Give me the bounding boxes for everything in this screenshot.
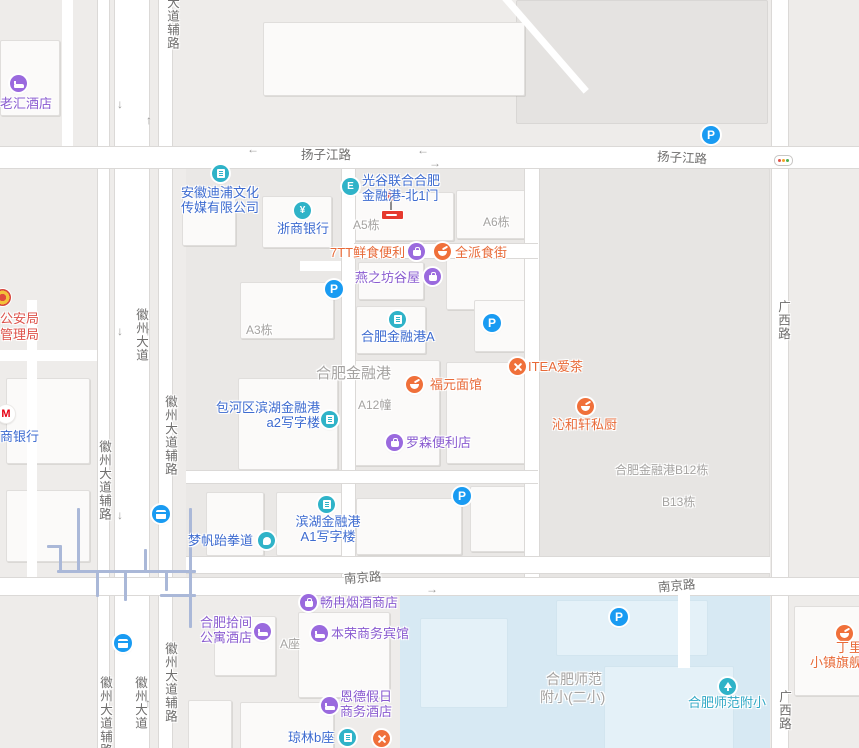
office-building-icon[interactable] (389, 311, 406, 328)
arrow-up-icon: ↑ (145, 697, 151, 709)
parking-icon[interactable]: P (453, 487, 471, 505)
road-guangxi (771, 0, 789, 748)
poi-label-yanzhifang[interactable]: 燕之坊谷屋 (355, 270, 420, 285)
poi-label-mengfan[interactable]: 梦帆跆拳道 (188, 533, 253, 548)
building-glyph-icon (323, 500, 331, 509)
building-label-a5: A5栋 (353, 218, 380, 233)
laneway (47, 545, 61, 548)
building-glyph-icon (394, 315, 402, 324)
poi-label-laohui-hotel[interactable]: 老汇酒店 (0, 96, 52, 111)
bowl-glyph-icon (581, 406, 590, 411)
road-label-huizhou-side: 徽州大道辅路 (162, 642, 177, 723)
arrow-up-icon: ↑ (145, 325, 151, 337)
poi-label-shifan-school[interactable]: 合肥师范附小 (688, 695, 766, 710)
food-street-icon[interactable] (434, 243, 451, 260)
road-label-huizhou-side: 大道辅路 (164, 0, 179, 50)
road-label-nanjing: 南京路 (344, 570, 382, 588)
noodle-restaurant-icon[interactable] (406, 376, 423, 393)
marker-bar (381, 210, 404, 220)
poi-line: 合肥拾间 (200, 615, 252, 630)
poi-line: 光谷联合合肥 (362, 173, 440, 188)
laneway (77, 508, 80, 572)
poi-line: 包河区滨湖金融港 (190, 400, 320, 415)
convenience-store-icon[interactable] (408, 243, 425, 260)
poi-label-ende-hotel[interactable]: 恩德假日 商务酒店 (340, 689, 392, 719)
tobacco-shop-icon[interactable] (300, 594, 317, 611)
company-building-icon[interactable] (212, 165, 229, 182)
poi-label-benrong[interactable]: 本荣商务宾馆 (331, 626, 409, 641)
poi-label-fuyuan[interactable]: 福元面馆 (430, 377, 482, 392)
police-badge-icon[interactable] (0, 289, 11, 306)
arrow-up-icon: ↑ (146, 114, 152, 126)
poi-line: 丁里羊 (810, 640, 859, 655)
fork-knife-glyph-icon (377, 734, 387, 744)
school-icon[interactable] (719, 678, 736, 695)
amber-light-dot (782, 159, 785, 162)
poi-label-itea[interactable]: ITEA爱茶 (528, 359, 583, 374)
bag-glyph-icon (413, 250, 421, 256)
poi-line: 恩德假日 (340, 689, 392, 704)
poi-label-a1-tower[interactable]: 滨湖金融港 A1写字楼 (283, 514, 373, 544)
laneway (96, 570, 99, 597)
building-label-b12: 合肥金融港B12栋 (615, 463, 708, 478)
bus-glyph-icon (156, 510, 166, 519)
arrow-down-icon: ↓ (117, 509, 123, 521)
parking-icon[interactable]: P (610, 608, 628, 626)
road-label-guangxi: 广西路 (776, 690, 791, 731)
building-label-a3: A3栋 (246, 323, 273, 338)
martial-arts-icon[interactable] (258, 532, 275, 549)
poi-label-qinhexuan[interactable]: 沁和轩私厨 (552, 417, 617, 432)
office-building-icon[interactable] (321, 411, 338, 428)
laneway (124, 570, 127, 601)
building-glyph-icon (217, 169, 225, 178)
traffic-light-icon (774, 155, 793, 166)
bed-glyph-icon (14, 84, 24, 88)
school-building (420, 618, 508, 708)
shop-icon[interactable] (424, 268, 441, 285)
poi-label-cmb-bank[interactable]: 商银行 (0, 429, 39, 444)
area-label-school-line2: 附小(二小) (540, 690, 605, 705)
building-glyph-icon (344, 733, 352, 742)
arrow-left-icon: ← (417, 144, 429, 156)
hotel-icon[interactable] (321, 697, 338, 714)
poi-label-7tt-store[interactable]: 7TT鲜食便利 (330, 245, 405, 260)
poi-label-quanpai[interactable]: 全派食街 (455, 245, 507, 260)
poi-line: 公安局 (0, 311, 39, 327)
bed-glyph-icon (315, 634, 325, 638)
road-huizhou-service-east (158, 0, 173, 748)
road-minor (0, 350, 97, 361)
poi-label-zheshang-bank[interactable]: 浙商银行 (277, 221, 329, 236)
office-building-icon[interactable] (339, 729, 356, 746)
bowl-glyph-icon (840, 633, 849, 638)
bed-glyph-icon (325, 706, 335, 710)
poi-label-police-bureau[interactable]: 公安局 管理局 (0, 311, 39, 343)
restaurant-icon[interactable] (577, 398, 594, 415)
building-footprint (188, 700, 232, 748)
arrow-left-icon: ← (247, 143, 259, 155)
poi-line: 滨湖金融港 (283, 514, 373, 529)
arrow-down-icon: ↓ (117, 325, 123, 337)
building-label-b13: B13栋 (662, 495, 695, 510)
poi-label-dipu-media[interactable]: 安徽迪浦文化 传媒有限公司 (181, 185, 259, 215)
road-minor (62, 0, 73, 146)
building-footprint (263, 22, 525, 96)
poi-line: a2写字楼 (190, 415, 320, 430)
road-internal (300, 261, 341, 271)
poi-label-a2-tower[interactable]: 包河区滨湖金融港 a2写字楼 (190, 400, 320, 430)
laneway (144, 549, 147, 572)
green-light-dot (786, 159, 789, 162)
bus-stop-icon[interactable] (114, 634, 132, 652)
poi-line: 安徽迪浦文化 (181, 185, 259, 200)
poi-line: 公寓酒店 (200, 630, 252, 645)
restaurant-icon[interactable] (373, 730, 390, 747)
poi-label-changran[interactable]: 畅冉烟酒商店 (320, 595, 398, 610)
bowl-glyph-icon (410, 384, 419, 389)
parking-icon[interactable]: P (325, 280, 343, 298)
tree-glyph-icon (724, 682, 732, 688)
laneway (160, 594, 196, 597)
road-internal-frontage (186, 556, 770, 574)
hotel-icon[interactable] (311, 625, 328, 642)
red-light-dot (778, 159, 781, 162)
road-huizhou-service-west (97, 0, 110, 748)
poi-line: A1写字楼 (283, 529, 373, 544)
fork-knife-glyph-icon (513, 362, 523, 372)
road-label-guangxi: 广西路 (775, 300, 790, 341)
fist-glyph-icon (263, 537, 271, 545)
laneway (165, 570, 168, 591)
poi-label-guanggu-gate[interactable]: 光谷联合合肥 金融港-北1门 (362, 173, 440, 203)
poi-label-lawson[interactable]: 罗森便利店 (406, 435, 471, 450)
road-label-yangzijiang: 扬子江路 (657, 150, 708, 168)
bank-icon[interactable]: ¥ (294, 202, 311, 219)
building-top-right (516, 0, 768, 124)
poi-line: 商务酒店 (340, 704, 392, 719)
school-path (678, 594, 690, 668)
arrow-right-icon: → (426, 583, 438, 595)
arrow-down-icon: ↓ (117, 98, 123, 110)
road-label-huizhou-side: 徽州大道辅路 (97, 676, 112, 748)
road-internal (186, 470, 538, 484)
hotel-icon[interactable] (10, 75, 27, 92)
bus-stop-icon[interactable] (152, 505, 170, 523)
parking-icon[interactable]: P (702, 126, 720, 144)
building-footprint (298, 612, 390, 698)
road-label-yangzijiang: 扬子江路 (301, 148, 351, 163)
bed-glyph-icon (258, 632, 268, 636)
poi-line: 传媒有限公司 (181, 200, 259, 215)
laneway (59, 545, 62, 572)
poi-line: 管理局 (0, 327, 39, 343)
building-glyph-icon (326, 415, 334, 424)
building-label-a12: A12幢 (358, 398, 391, 413)
entrance-icon[interactable]: E (342, 178, 359, 195)
bus-glyph-icon (118, 639, 128, 648)
arrow-right-icon: → (429, 157, 441, 169)
restaurant-icon[interactable] (509, 358, 526, 375)
bowl-glyph-icon (438, 251, 447, 256)
parking-icon[interactable]: P (483, 314, 501, 332)
area-label-jinronggang: 合肥金融港 (316, 366, 391, 381)
building-label-azuo: A座 (280, 637, 300, 652)
poi-line: 金融港-北1门 (362, 188, 440, 203)
bag-glyph-icon (391, 441, 399, 447)
poi-label-qionglin[interactable]: 琼林b座 (288, 730, 334, 745)
poi-label-dingliyang[interactable]: 丁里羊 小镇旗舰店 (810, 640, 859, 670)
building-label-a6: A6栋 (483, 215, 510, 230)
convenience-store-icon[interactable] (386, 434, 403, 451)
area-label-school-line1: 合肥师范 (546, 672, 602, 687)
laneway (189, 508, 192, 628)
road-label-huizhou-side: 徽州大道辅路 (96, 440, 111, 521)
poi-line: 小镇旗舰店 (810, 655, 859, 670)
map-canvas[interactable]: 扬子江路 扬子江路 南京路 南京路 广西路 广西路 大道辅路 徽州大道 徽州大道… (0, 0, 859, 748)
poi-label-shijian-hotel[interactable]: 合肥拾间 公寓酒店 (200, 615, 252, 645)
office-building-icon[interactable] (318, 496, 335, 513)
poi-label-jinronggang-a[interactable]: 合肥金融港A (361, 329, 435, 344)
road-label-huizhou-side: 徽州大道辅路 (162, 395, 177, 476)
hotel-icon[interactable] (254, 623, 271, 640)
building-footprint (6, 378, 90, 464)
bag-glyph-icon (429, 275, 437, 281)
bag-glyph-icon (305, 601, 313, 607)
